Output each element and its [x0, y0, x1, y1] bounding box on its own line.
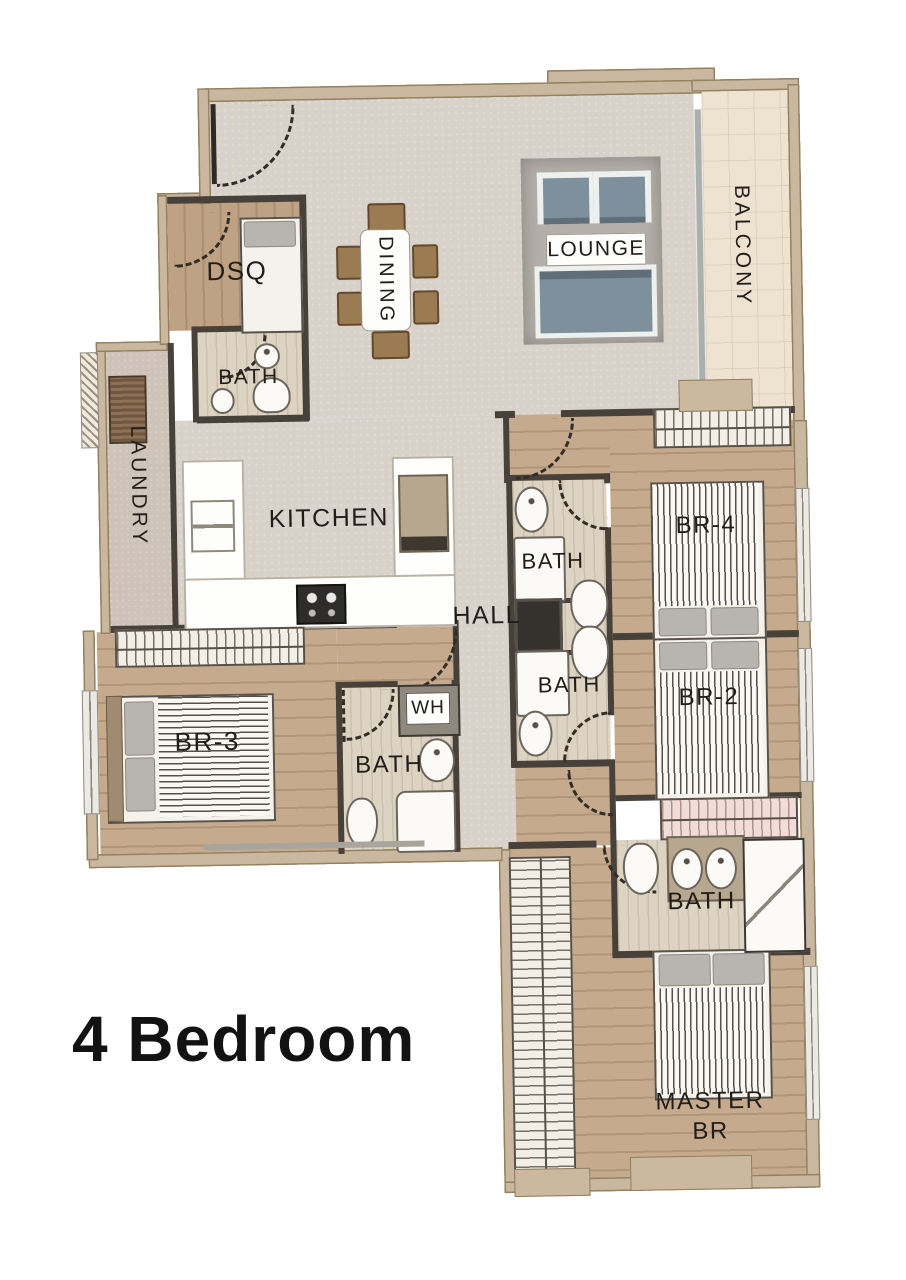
- dining-chair: [412, 244, 439, 278]
- br3-label: BR-3: [174, 726, 240, 758]
- sofa: [534, 264, 657, 338]
- fridge: [398, 474, 449, 553]
- wardrobe-master: [509, 856, 577, 1179]
- br4-label: BR-4: [651, 511, 761, 541]
- master-bath-shower: [742, 838, 806, 953]
- wardrobe-divider: [117, 646, 303, 651]
- window-master: [804, 966, 821, 1120]
- lounge-label: LOUNGE: [547, 237, 645, 263]
- bath-br3-door-line: [342, 690, 349, 742]
- master-br-label-line2: BR: [625, 1116, 795, 1147]
- dining-chair: [336, 246, 363, 280]
- bath-master-label: BATH: [667, 887, 736, 916]
- window-laundry: [80, 352, 100, 448]
- wall-balcony-top: [691, 78, 799, 92]
- dining-chair: [413, 290, 440, 324]
- dining-chair: [371, 331, 409, 360]
- wardrobe-br4: [653, 406, 792, 448]
- bath-dsq-label: BATH: [218, 365, 279, 390]
- master-br-label-line1: MASTER: [625, 1086, 795, 1117]
- dining-label: DINING: [373, 236, 398, 324]
- plan-title: 4 Bedroom: [72, 1002, 415, 1076]
- lounge-label-plate: LOUNGE: [546, 233, 647, 267]
- bed-br2-pillow: [659, 642, 707, 671]
- bath-upper-label: BATH: [521, 548, 584, 575]
- dining-chair: [337, 292, 364, 326]
- bath-br3-toilet: [346, 797, 379, 848]
- dining-table: DINING: [360, 229, 412, 332]
- wall-bathbr3-top: [336, 681, 398, 688]
- bath-br3-label: BATH: [355, 751, 424, 780]
- dsq-bed-pillow: [244, 221, 296, 248]
- window-br3: [82, 690, 100, 814]
- bed-br3-pillow: [124, 701, 155, 756]
- wardrobe-divider: [662, 817, 796, 821]
- floor-plan: LOUNGE DINING: [0, 0, 906, 1280]
- dsq-label: DSQ: [206, 255, 267, 287]
- bench: [630, 1155, 753, 1191]
- bed-br4-duvet: [652, 483, 760, 607]
- hall-label: HALL: [452, 601, 521, 631]
- wardrobe-divider: [540, 858, 548, 1176]
- balcony-planter: [678, 379, 753, 412]
- wh-label: WH: [411, 697, 445, 720]
- wardrobe-divider: [655, 426, 789, 430]
- bed-br4-pillow: [658, 608, 706, 637]
- kitchen-label: KITCHEN: [269, 503, 390, 534]
- kitchen-sink: [190, 500, 235, 553]
- bed-master-duvet: [655, 987, 767, 1095]
- laundry-label: LAUNDRY: [125, 425, 151, 546]
- wall-left-entry: [197, 88, 211, 204]
- floor-plan-canvas: LOUNGE DINING: [0, 0, 906, 1280]
- wall-laundry-step: [96, 341, 168, 352]
- wardrobe-br3: [115, 627, 306, 668]
- bed-master-pillow: [712, 953, 765, 986]
- bath-lower-label: BATH: [537, 671, 600, 698]
- bed-br4-pillow: [710, 607, 758, 636]
- window-br4: [795, 488, 811, 622]
- water-heater-plate: WH: [406, 692, 451, 725]
- bench: [514, 1168, 590, 1197]
- services-shaft: [514, 598, 563, 653]
- bed-br3-pillow: [125, 757, 156, 812]
- bed-master-pillow: [658, 954, 711, 987]
- wardrobe-master-bath: [660, 796, 799, 840]
- armchair: [593, 170, 652, 223]
- wall-hall-left: [503, 411, 510, 483]
- balcony-label: BALCONY: [729, 185, 755, 307]
- br2-label: BR-2: [654, 683, 764, 713]
- stove: [296, 584, 347, 625]
- bed-br2-pillow: [711, 641, 759, 670]
- armchair: [537, 171, 596, 224]
- window-br2: [798, 648, 814, 782]
- bed-br3-headboard: [106, 696, 124, 822]
